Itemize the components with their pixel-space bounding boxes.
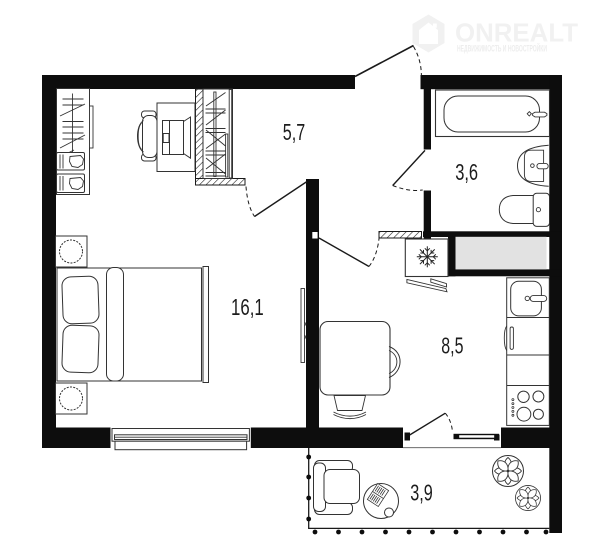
svg-text:3,9: 3,9 [410,480,433,506]
svg-text:3,6: 3,6 [455,159,478,185]
svg-text:НЕДВИЖИМОСТЬ И НОВОСТРОЙКИ: НЕДВИЖИМОСТЬ И НОВОСТРОЙКИ [457,43,547,55]
svg-text:8,5: 8,5 [441,332,463,358]
svg-text:16,1: 16,1 [231,294,264,320]
svg-text:5,7: 5,7 [283,119,305,145]
